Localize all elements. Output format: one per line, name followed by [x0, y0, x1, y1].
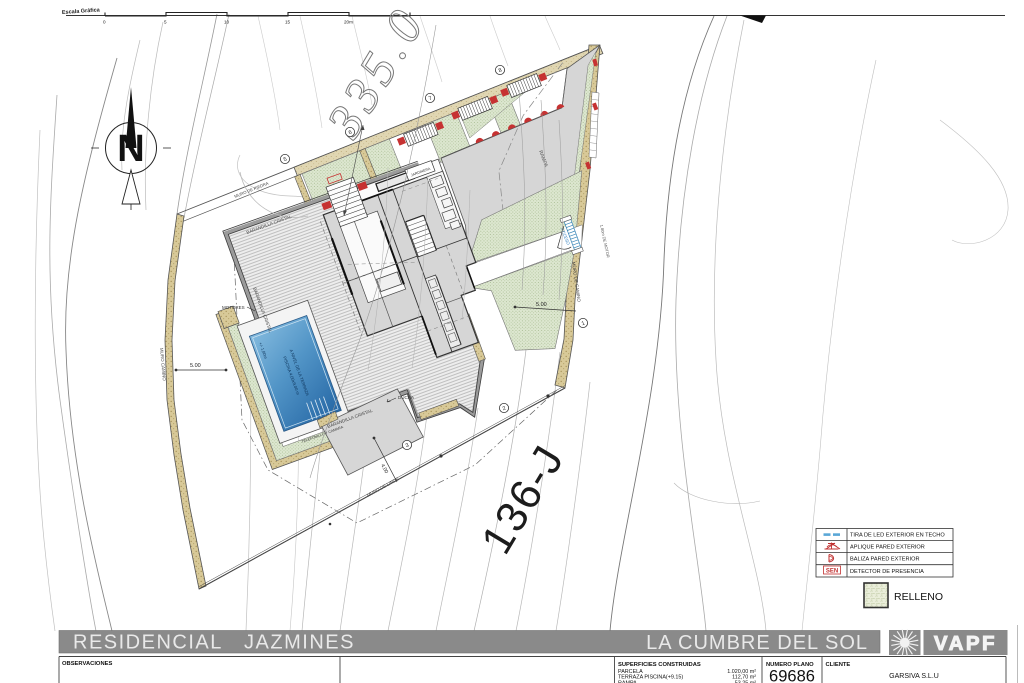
svg-text:OBSERVACIONES: OBSERVACIONES	[62, 661, 112, 667]
svg-text:20m: 20m	[344, 20, 353, 25]
svg-text:15: 15	[285, 20, 291, 25]
svg-text:DUCHA: DUCHA	[398, 395, 414, 400]
svg-text:0: 0	[103, 20, 106, 25]
svg-text:5: 5	[164, 20, 167, 25]
svg-text:N: N	[117, 128, 144, 170]
svg-text:GARSIVA S.L.U: GARSIVA S.L.U	[889, 673, 939, 680]
svg-text:RESIDENCIAL JAZMINES: RESIDENCIAL JAZMINES	[73, 632, 355, 654]
svg-text:APLIQUE PARED EXTERIOR: APLIQUE PARED EXTERIOR	[850, 545, 925, 551]
svg-text:RELLENO: RELLENO	[894, 591, 943, 603]
svg-text:69686: 69686	[769, 668, 815, 683]
svg-text:MOTORES: MOTORES	[222, 305, 245, 310]
svg-text:SUPERFICIES CONSTRUIDAS: SUPERFICIES CONSTRUIDAS	[618, 662, 701, 668]
svg-text:CLIENTE: CLIENTE	[826, 662, 851, 668]
svg-text:5.00: 5.00	[190, 363, 201, 369]
svg-text:DETECTOR DE PRESENCIA: DETECTOR DE PRESENCIA	[850, 569, 924, 575]
svg-text:SEN: SEN	[826, 569, 838, 575]
svg-text:5.00: 5.00	[536, 302, 547, 308]
svg-text:TIRA DE LED EXTERIOR EN TECHO: TIRA DE LED EXTERIOR EN TECHO	[850, 533, 945, 539]
svg-text:LA CUMBRE DEL SOL: LA CUMBRE DEL SOL	[646, 632, 868, 654]
svg-text:10: 10	[224, 20, 230, 25]
svg-text:BALIZA PARED EXTERIOR: BALIZA PARED EXTERIOR	[850, 557, 920, 563]
svg-text:VAPF: VAPF	[934, 632, 997, 655]
